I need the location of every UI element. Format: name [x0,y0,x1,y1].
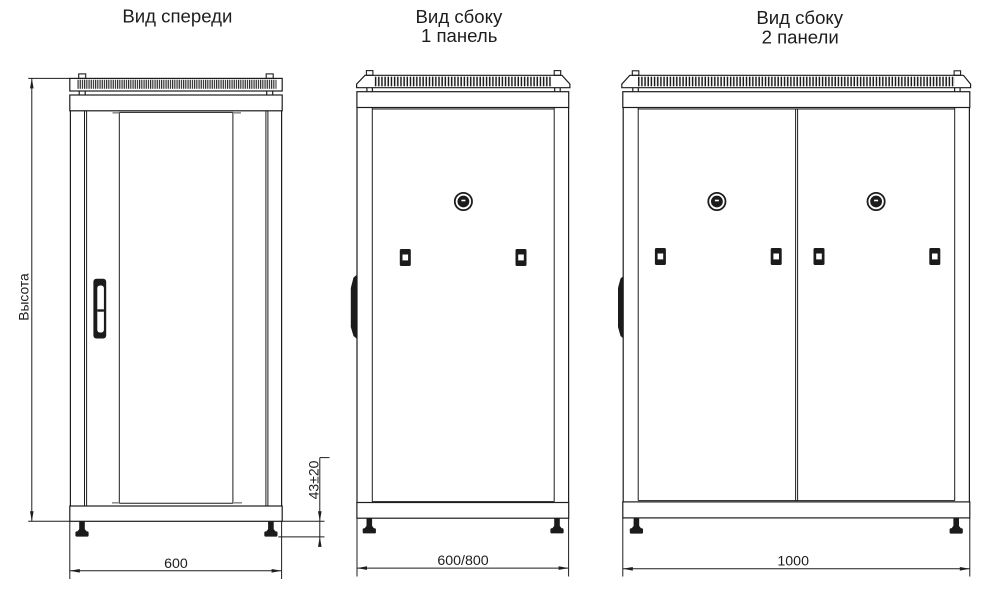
svg-text:2 панели: 2 панели [762,27,839,48]
svg-text:600/800: 600/800 [437,553,488,569]
svg-text:1000: 1000 [777,553,809,569]
svg-text:1 панель: 1 панель [421,25,497,46]
svg-text:Вид сбоку: Вид сбоку [756,7,843,28]
svg-text:600: 600 [164,556,188,572]
svg-text:Высота: Высота [17,273,32,321]
svg-text:Вид спереди: Вид спереди [122,6,232,27]
svg-text:43±20: 43±20 [305,460,321,499]
